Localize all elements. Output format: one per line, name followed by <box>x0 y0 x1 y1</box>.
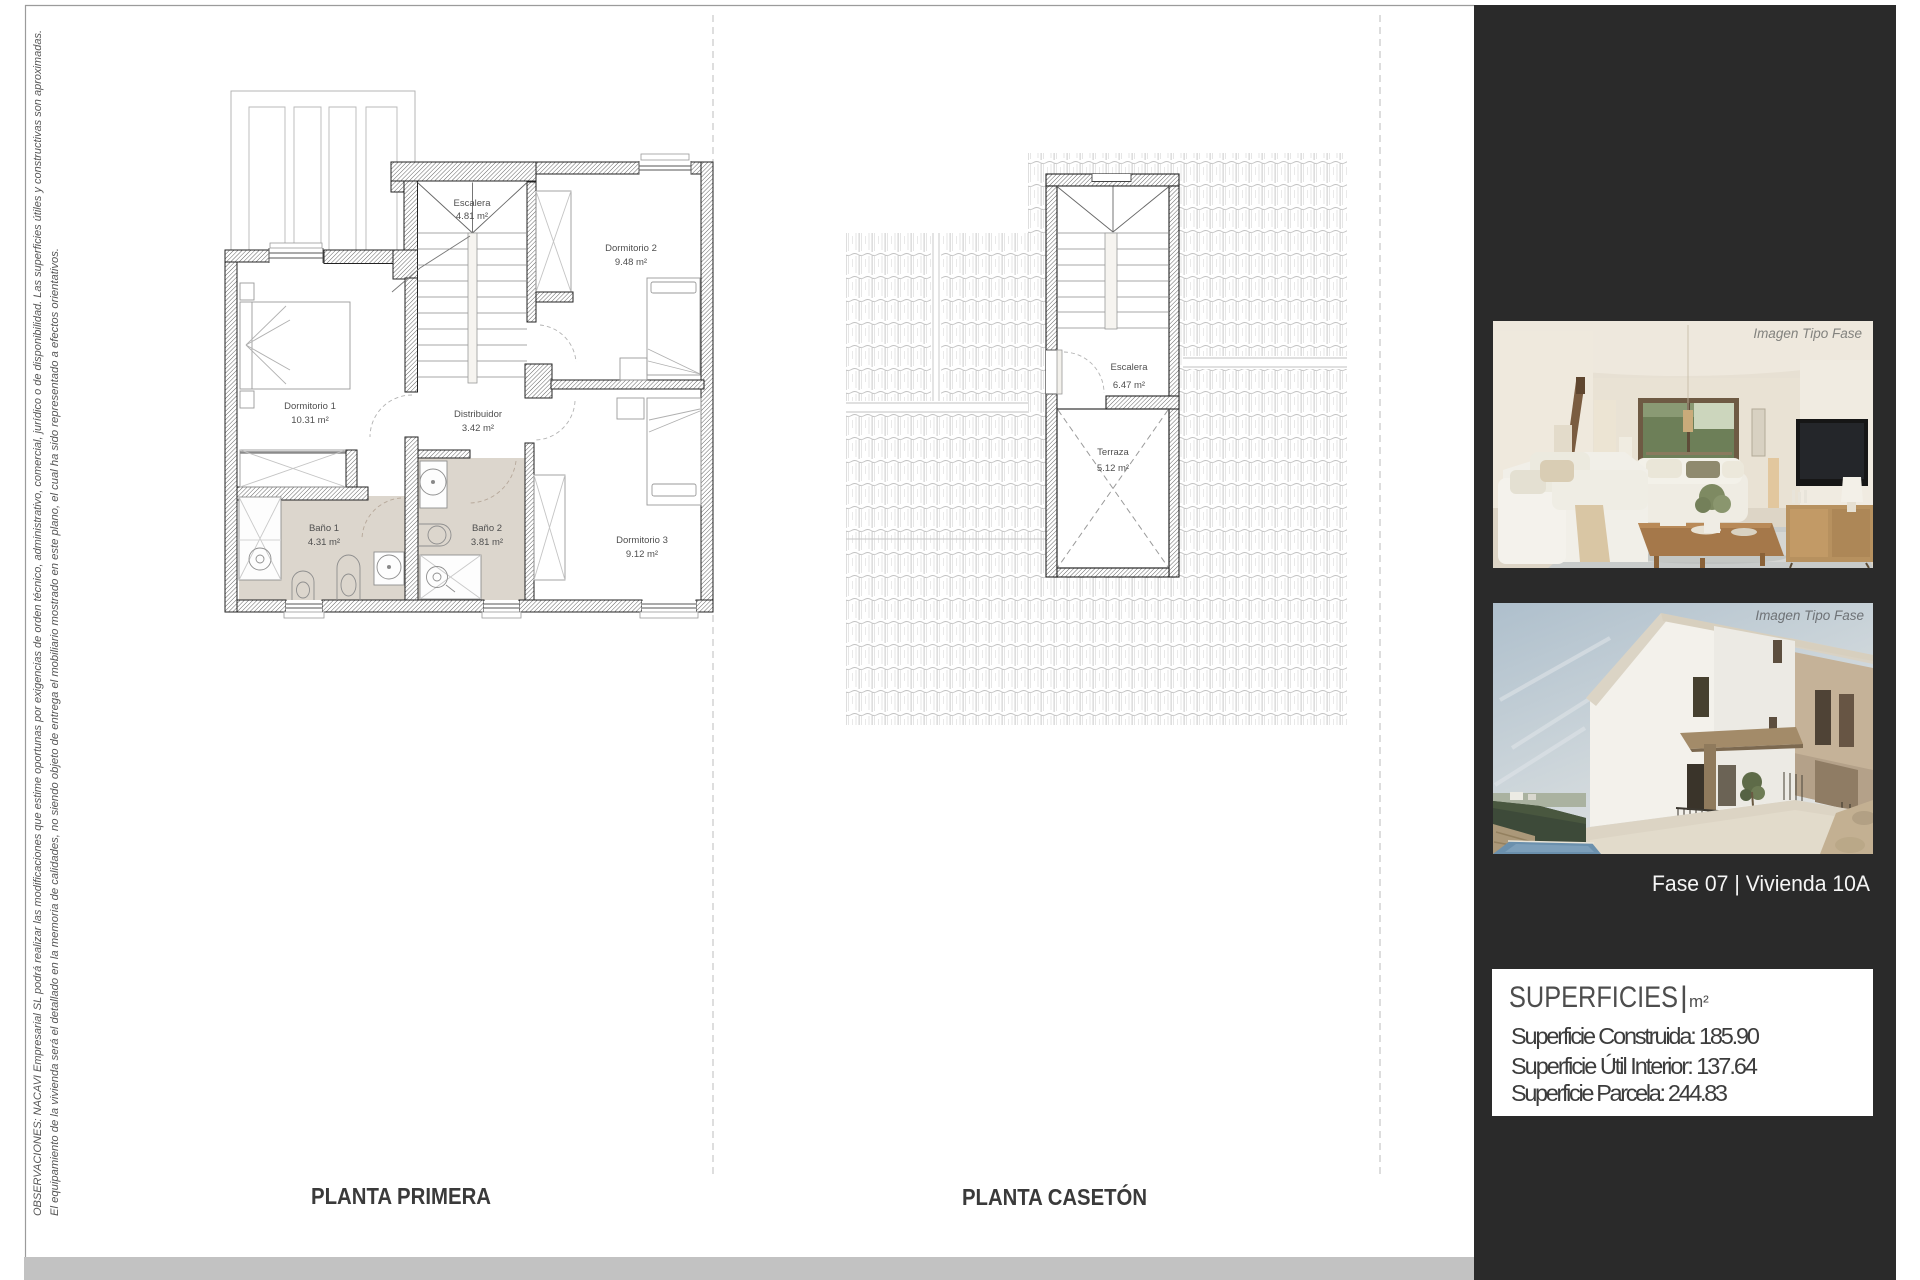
svg-text:OBSERVACIONES: NACAVI Empresar: OBSERVACIONES: NACAVI Empresarial SL pod… <box>32 30 44 1216</box>
svg-text:Superficie Útil Interior: 137.: Superficie Útil Interior: 137.64 <box>1511 1053 1758 1079</box>
svg-text:PLANTA CASETÓN: PLANTA CASETÓN <box>962 1183 1147 1210</box>
svg-text:3.81 m²: 3.81 m² <box>471 537 503 548</box>
svg-text:SUPERFICIES: SUPERFICIES <box>1509 981 1678 1014</box>
svg-text:Baño 1: Baño 1 <box>309 523 339 534</box>
svg-text:Distribuidor: Distribuidor <box>454 409 502 420</box>
svg-text:|: | <box>1680 981 1688 1014</box>
svg-text:Escalera: Escalera <box>454 198 492 209</box>
svg-text:6.47 m²: 6.47 m² <box>1113 380 1145 391</box>
svg-text:4.81 m²: 4.81 m² <box>456 211 488 222</box>
svg-text:Dormitorio 3: Dormitorio 3 <box>616 535 668 546</box>
svg-text:Fase 07 | Vivienda 10A: Fase 07 | Vivienda 10A <box>1652 871 1870 896</box>
svg-text:Superficie Construida: 185.90: Superficie Construida: 185.90 <box>1511 1023 1760 1049</box>
svg-text:5.12 m²: 5.12 m² <box>1097 463 1129 474</box>
svg-text:4.31 m²: 4.31 m² <box>308 537 340 548</box>
svg-text:Escalera: Escalera <box>1111 362 1149 373</box>
svg-text:Baño 2: Baño 2 <box>472 523 502 534</box>
svg-text:El equipamiento de la vivienda: El equipamiento de la vivienda será el d… <box>49 248 61 1216</box>
svg-text:Imagen Tipo Fase: Imagen Tipo Fase <box>1755 608 1864 623</box>
svg-text:PLANTA PRIMERA: PLANTA PRIMERA <box>311 1183 491 1209</box>
svg-text:Imagen Tipo Fase: Imagen Tipo Fase <box>1753 326 1862 341</box>
svg-text:Superficie Parcela: 244.83: Superficie Parcela: 244.83 <box>1511 1080 1728 1106</box>
svg-text:9.12 m²: 9.12 m² <box>626 549 658 560</box>
svg-text:m²: m² <box>1689 992 1709 1011</box>
svg-text:10.31 m²: 10.31 m² <box>291 415 329 426</box>
svg-text:Dormitorio 2: Dormitorio 2 <box>605 243 657 254</box>
svg-text:Dormitorio 1: Dormitorio 1 <box>284 401 336 412</box>
svg-text:Terraza: Terraza <box>1097 447 1129 458</box>
svg-text:3.42 m²: 3.42 m² <box>462 423 494 434</box>
svg-text:9.48 m²: 9.48 m² <box>615 257 647 268</box>
